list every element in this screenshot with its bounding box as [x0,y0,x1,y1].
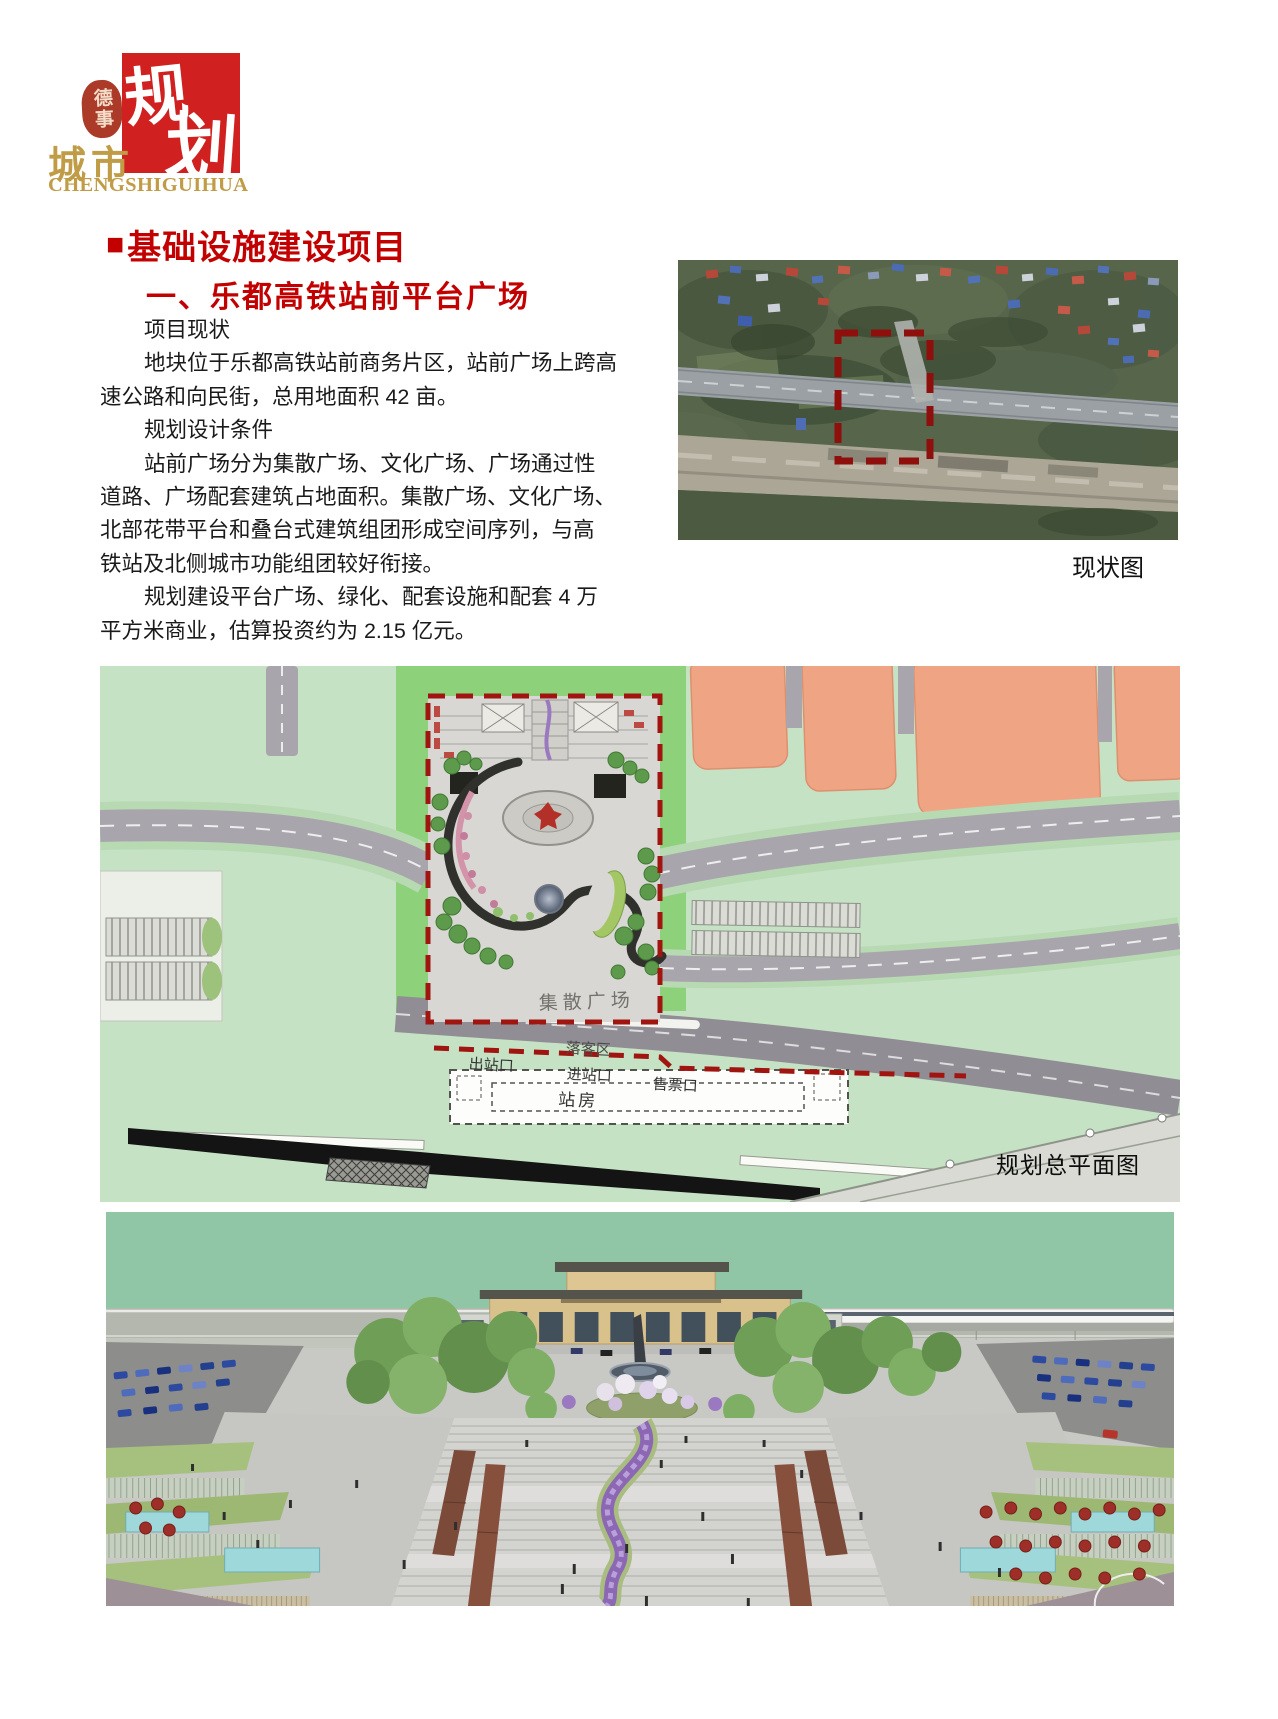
satellite-figure [678,260,1178,540]
label-station-house: 站房 [558,1090,599,1110]
body-line: 铁站及北侧城市功能组团较好衔接。 [100,548,634,581]
seal-stamp-icon: 德事 [81,79,124,139]
body-line: 规划建设平台广场、绿化、配套设施和配套 4 万 [100,581,634,614]
body-line: 站前广场分为集散广场、文化广场、广场通过性 [100,448,634,481]
station-house-outline [450,1070,848,1124]
section-heading: ■ 基础设施建设项目 [106,220,407,269]
project-subtitle: 一、乐都高铁站前平台广场 [146,272,530,316]
logo-red-square: 规 划 [122,53,240,173]
document-page: 规 划 德事 城市 CHENGSHIGUIHUA ■ 基础设施建设项目 一、乐都… [0,0,1278,1719]
body-line: 北部花带平台和叠台式建筑组团形成空间序列，与高 [100,514,634,547]
body-line: 平方米商业，估算投资约为 2.15 亿元。 [100,615,634,648]
label-ticket: 售票口 [652,1076,698,1095]
body-line: 速公路和向民街，总用地面积 42 亩。 [100,381,634,414]
master-plan-figure: 集散广场 落客区 出站口 进站口 售票口 站房 规划总平面图 [100,666,1180,1202]
body-line: 道路、广场配套建筑占地面积。集散广场、文化广场、 [100,481,634,514]
body-line: 规划设计条件 [100,414,634,447]
label-exit: 出站口 [468,1056,514,1075]
satellite-image [678,260,1178,540]
master-plan-image: 集散广场 落客区 出站口 进站口 售票口 站房 [100,666,1180,1202]
body-line: 地块位于乐都高铁站前商务片区，站前广场上跨高 [100,347,634,380]
label-dropoff: 落客区 [565,1040,611,1059]
square-bullet-icon: ■ [106,228,125,262]
plan-caption: 规划总平面图 [996,1146,1140,1180]
logo-pinyin: CHENGSHIGUIHUA [48,174,248,197]
label-entrance: 进站口 [566,1066,612,1085]
plaza-label-gather: 集散广场 [538,989,635,1014]
render-figure [106,1212,1174,1606]
body-line: 项目现状 [100,314,634,347]
section-title: 基础设施建设项目 [127,220,407,269]
satellite-caption: 现状图 [678,548,1178,583]
render-image [106,1212,1174,1606]
magazine-logo: 规 划 德事 城市 CHENGSHIGUIHUA [48,38,288,196]
article-body: 项目现状 地块位于乐都高铁站前商务片区，站前广场上跨高 速公路和向民街，总用地面… [100,314,634,648]
